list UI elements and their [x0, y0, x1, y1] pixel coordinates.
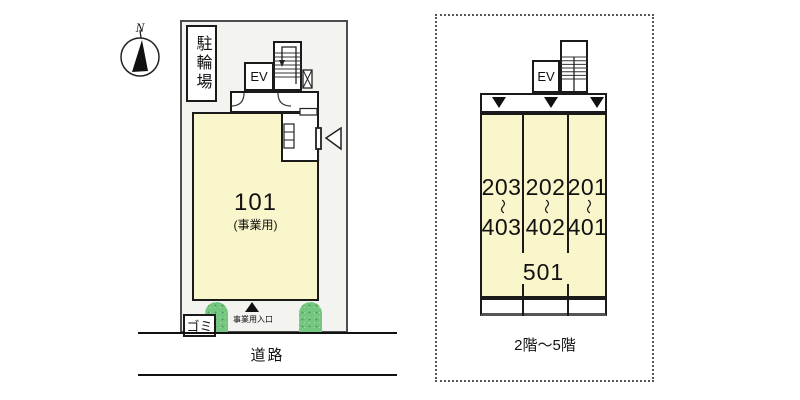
- corridor-upper: [480, 93, 607, 113]
- unit-stack-top: 202: [526, 175, 566, 199]
- balcony-strip: [480, 298, 607, 316]
- floor-plan-diagram: N 駐輪場 EV 101 (事業用) ゴミ 事業用入口 道路 EV 203 〜 …: [0, 0, 800, 400]
- unit-stack-bottom: 401: [568, 215, 608, 239]
- unit-stack-203-403: 203 〜 403: [481, 175, 522, 239]
- corridor-1f: [230, 91, 319, 113]
- elevator-upper-label: EV: [537, 69, 554, 84]
- stairwell-upper: [560, 40, 588, 93]
- balcony-divider-left: [522, 284, 524, 316]
- business-entrance-label: 事業用入口: [226, 314, 280, 325]
- room-101-use: (事業用): [192, 216, 319, 233]
- line-art-overlay: [0, 0, 800, 400]
- unit-501-label: 501: [480, 259, 607, 286]
- unit-stack-201-401: 201 〜 401: [569, 175, 606, 239]
- bicycle-parking-label: 駐輪場: [190, 35, 214, 92]
- floors-range-label: 2階〜5階: [455, 334, 635, 355]
- entrance-hall-1f: [281, 112, 319, 162]
- north-needle-icon: [132, 40, 148, 72]
- balcony-divider-right: [567, 284, 569, 316]
- road-far-line: [138, 374, 397, 376]
- unit-stack-bottom: 403: [482, 215, 522, 239]
- room-101-number: 101: [192, 189, 319, 217]
- tilde-icon: 〜: [539, 199, 553, 215]
- unit-stack-top: 203: [482, 175, 522, 199]
- bicycle-parking-room: 駐輪場: [186, 25, 217, 102]
- unit-stack-top: 201: [568, 175, 608, 199]
- tilde-icon: 〜: [581, 199, 595, 215]
- tilde-icon: 〜: [495, 199, 509, 215]
- stairwell-1f: [273, 41, 302, 91]
- road-label: 道路: [138, 344, 397, 365]
- road-near-line: [138, 332, 397, 334]
- compass-circle: [121, 38, 159, 76]
- unit-stack-bottom: 402: [526, 215, 566, 239]
- elevator-1f-label: EV: [250, 69, 267, 84]
- elevator-upper: EV: [532, 60, 560, 93]
- shrub-right: [299, 302, 322, 333]
- compass-north-label: N: [130, 20, 150, 36]
- unit-stack-202-402: 202 〜 402: [524, 175, 567, 239]
- elevator-1f: EV: [244, 62, 274, 91]
